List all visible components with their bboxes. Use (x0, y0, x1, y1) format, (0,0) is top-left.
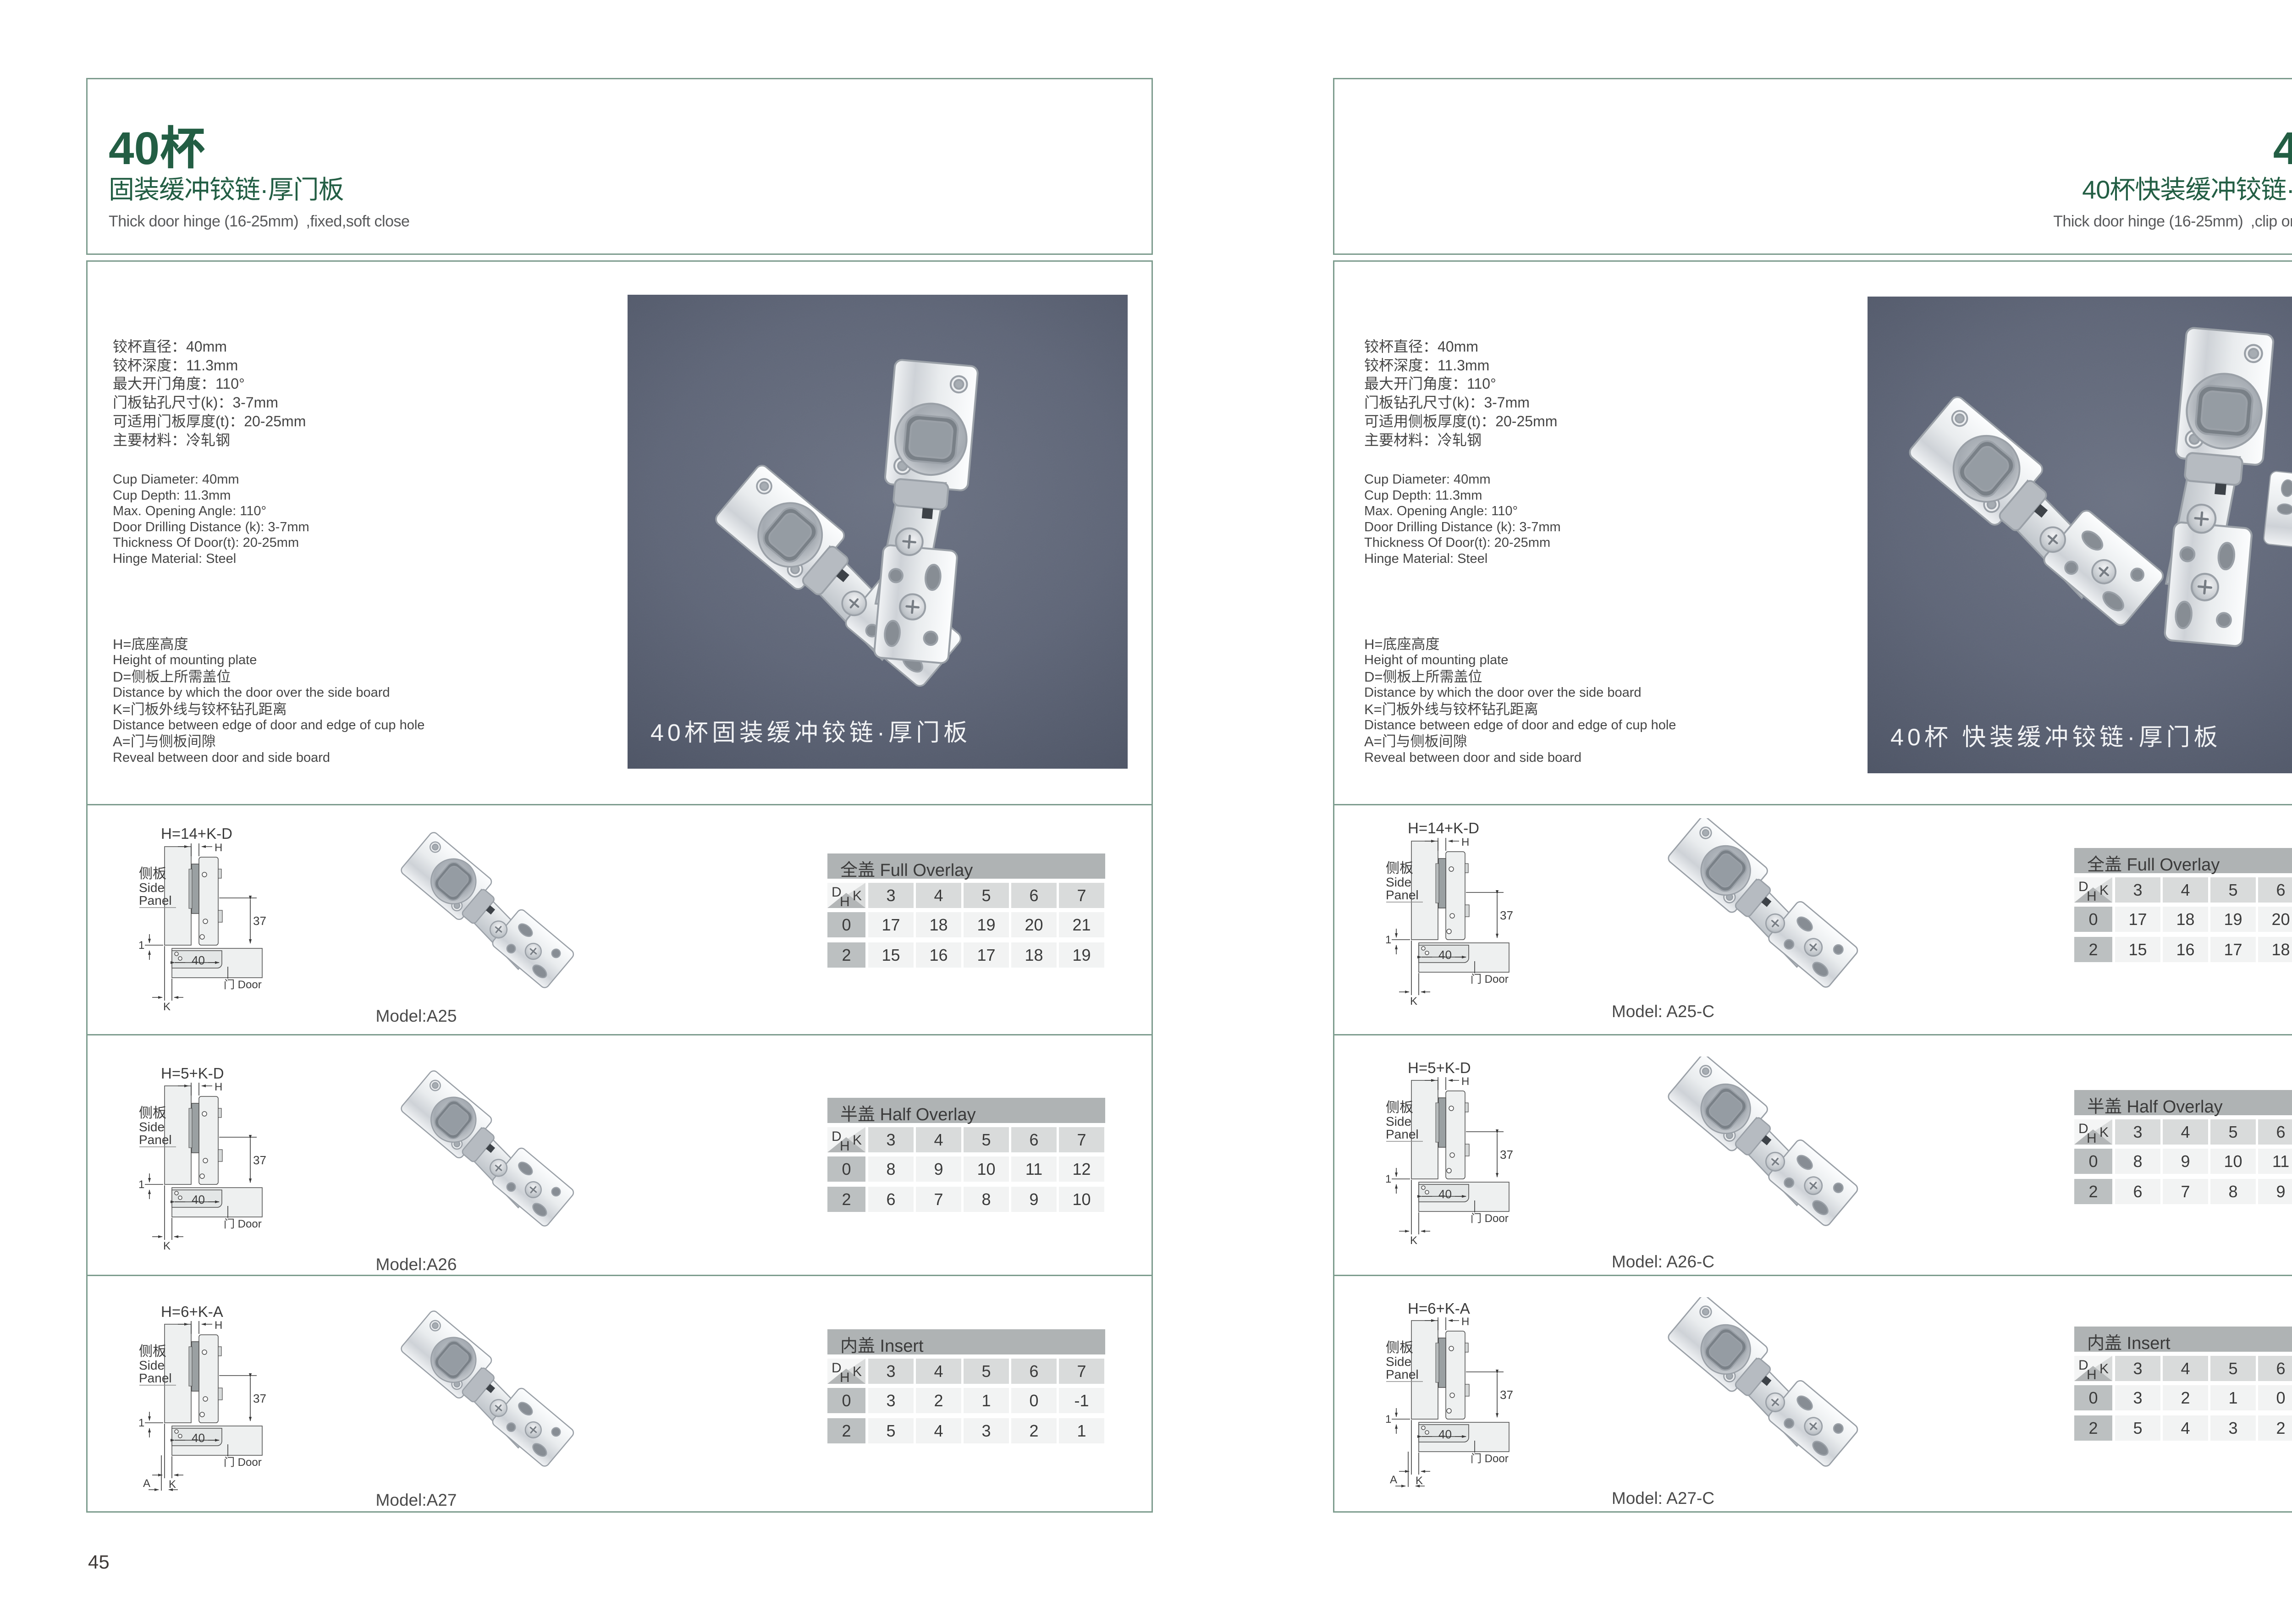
svg-text:侧板: 侧板 (139, 1344, 166, 1359)
svg-text:门 Door: 门 Door (224, 1456, 262, 1469)
svg-text:H: H (840, 1370, 850, 1384)
svg-text:A: A (143, 1477, 150, 1490)
svg-text:H: H (2087, 1367, 2097, 1381)
svg-text:40: 40 (192, 1193, 205, 1206)
svg-text:40: 40 (1438, 948, 1452, 962)
svg-text:Side: Side (139, 881, 165, 895)
svg-text:1: 1 (1385, 1173, 1391, 1185)
svg-text:K: K (853, 1364, 862, 1379)
svg-text:侧板: 侧板 (139, 866, 166, 881)
svg-text:H: H (2087, 889, 2097, 903)
svg-text:Side: Side (1386, 1114, 1411, 1129)
svg-text:侧板: 侧板 (139, 1106, 166, 1121)
svg-text:H: H (2087, 1131, 2097, 1145)
svg-text:H: H (215, 1082, 222, 1093)
svg-text:Panel: Panel (1386, 1367, 1419, 1382)
svg-text:37: 37 (1500, 1388, 1513, 1402)
svg-text:Panel: Panel (139, 1371, 172, 1385)
svg-text:K: K (853, 1133, 862, 1148)
svg-text:门 Door: 门 Door (224, 979, 262, 991)
svg-text:40: 40 (1438, 1427, 1452, 1441)
svg-text:K: K (163, 1001, 171, 1013)
svg-text:K: K (1410, 1234, 1417, 1247)
svg-text:H: H (1461, 1316, 1469, 1328)
svg-text:40: 40 (192, 1431, 205, 1445)
svg-text:40: 40 (192, 953, 205, 967)
svg-text:1: 1 (1385, 934, 1391, 946)
svg-text:Side: Side (1386, 875, 1411, 889)
svg-text:H: H (215, 842, 222, 854)
svg-text:Panel: Panel (139, 893, 172, 908)
svg-text:1: 1 (1385, 1413, 1391, 1426)
svg-text:Panel: Panel (1386, 1127, 1419, 1141)
svg-text:H: H (1461, 837, 1469, 848)
svg-text:Side: Side (1386, 1354, 1411, 1369)
svg-text:37: 37 (253, 1392, 266, 1405)
svg-text:Side: Side (139, 1120, 165, 1134)
svg-text:H: H (1461, 1076, 1469, 1088)
svg-text:侧板: 侧板 (1386, 1340, 1413, 1355)
svg-text:1: 1 (138, 1417, 144, 1429)
svg-text:侧板: 侧板 (1386, 861, 1413, 876)
svg-text:37: 37 (1500, 1148, 1513, 1162)
svg-text:K: K (2099, 1125, 2109, 1140)
svg-text:门 Door: 门 Door (1471, 1453, 1509, 1465)
svg-text:37: 37 (1500, 908, 1513, 922)
svg-text:K: K (2099, 1361, 2109, 1376)
svg-text:H: H (840, 1139, 850, 1152)
svg-text:K: K (1416, 1475, 1423, 1487)
svg-text:Side: Side (139, 1358, 165, 1372)
svg-text:1: 1 (138, 939, 144, 952)
svg-text:1: 1 (138, 1178, 144, 1191)
svg-text:Panel: Panel (1386, 888, 1419, 902)
svg-text:K: K (169, 1478, 176, 1491)
svg-text:H: H (840, 894, 850, 908)
svg-text:H: H (215, 1320, 222, 1332)
svg-text:侧板: 侧板 (1386, 1100, 1413, 1115)
svg-text:门 Door: 门 Door (1471, 973, 1509, 985)
svg-text:37: 37 (253, 914, 266, 928)
svg-text:门 Door: 门 Door (224, 1218, 262, 1230)
svg-text:37: 37 (253, 1153, 266, 1167)
svg-text:K: K (2099, 883, 2109, 898)
svg-text:K: K (1410, 995, 1417, 1007)
svg-text:40: 40 (1438, 1187, 1452, 1201)
svg-text:K: K (163, 1240, 171, 1252)
svg-text:K: K (853, 888, 862, 903)
svg-text:A: A (1390, 1474, 1397, 1486)
svg-text:门 Door: 门 Door (1471, 1212, 1509, 1225)
svg-text:Panel: Panel (139, 1133, 172, 1147)
